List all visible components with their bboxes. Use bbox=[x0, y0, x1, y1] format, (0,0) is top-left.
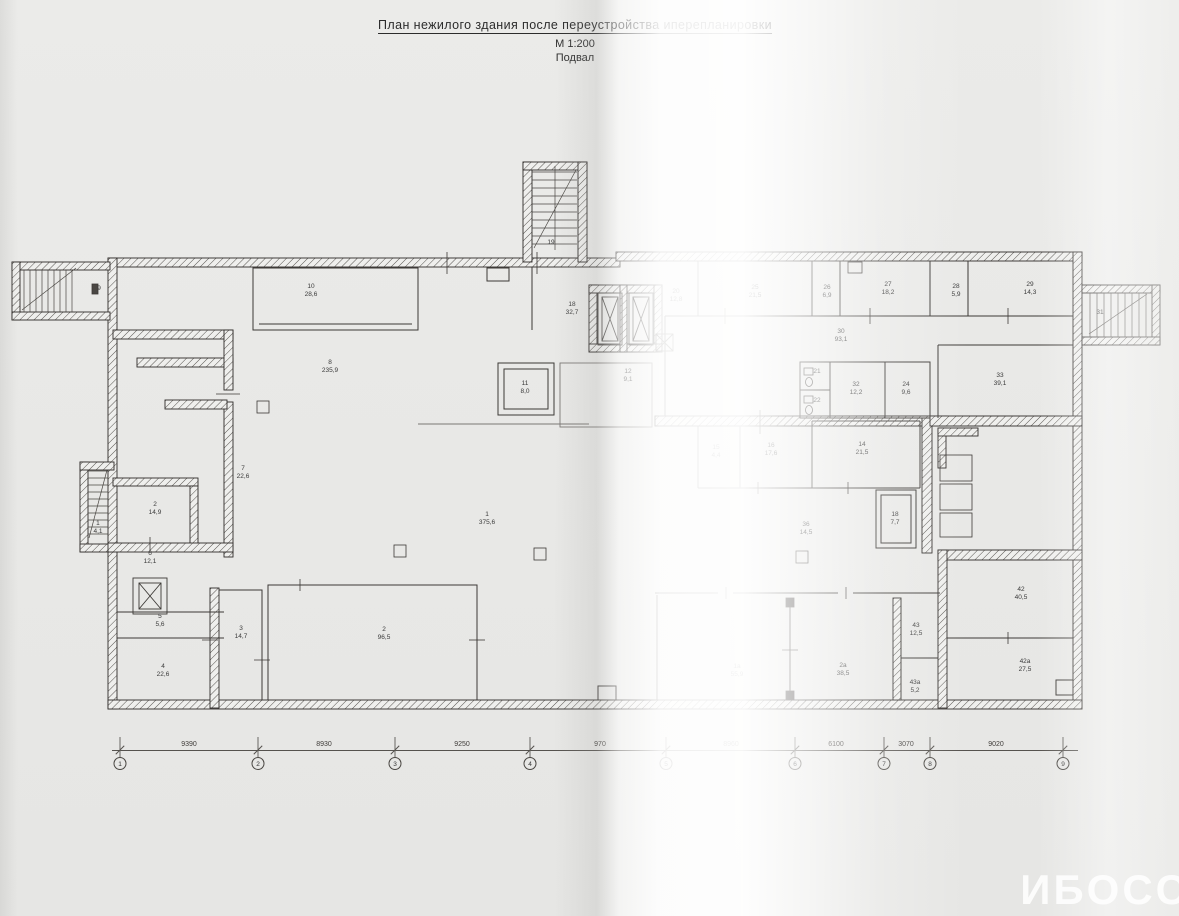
dimension-value: 3070 bbox=[898, 741, 914, 748]
title-block: План нежилого здания после переустройств… bbox=[378, 16, 772, 64]
dimension-value: 8960 bbox=[723, 741, 739, 748]
axis-bubble: 3 bbox=[389, 757, 402, 770]
dimension-value: 970 bbox=[594, 741, 606, 748]
dimension-value: 8930 bbox=[316, 741, 332, 748]
axis-bubble: 6 bbox=[789, 757, 802, 770]
dimension-value: 9020 bbox=[988, 741, 1004, 748]
axis-bubble: 9 bbox=[1057, 757, 1070, 770]
dimension-value: 6100 bbox=[828, 741, 844, 748]
scanned-floorplan-page: План нежилого здания после переустройств… bbox=[0, 0, 1179, 916]
dimension-value: 9250 bbox=[454, 741, 470, 748]
axis-bubble: 4 bbox=[524, 757, 537, 770]
axes-layer: 1234567899390893092509708960610030709020 bbox=[0, 0, 1179, 916]
plan-scale: М 1:200 bbox=[378, 38, 772, 50]
axis-bubble: 2 bbox=[252, 757, 265, 770]
plan-title: План нежилого здания после переустройств… bbox=[378, 18, 772, 34]
axis-bubble: 1 bbox=[114, 757, 127, 770]
axis-bubble: 5 bbox=[660, 757, 673, 770]
dimension-value: 9390 bbox=[181, 741, 197, 748]
axis-bubble: 7 bbox=[878, 757, 891, 770]
plan-floor: Подвал bbox=[378, 52, 772, 64]
axis-bubble: 8 bbox=[924, 757, 937, 770]
